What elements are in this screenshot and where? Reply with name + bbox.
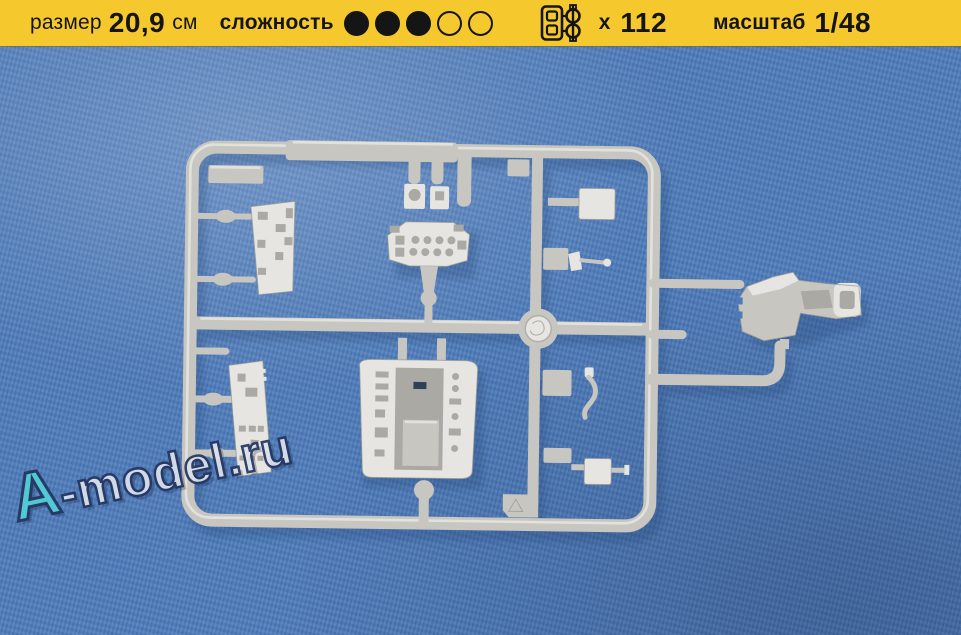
- sprue-icon: [539, 4, 585, 42]
- part-side-panel-upper: [250, 201, 295, 296]
- product-card: размер 20,9 см сложность x 112: [0, 0, 961, 635]
- parts-count-value: 112: [620, 7, 667, 39]
- part-square-plate: [548, 188, 615, 220]
- difficulty-dot: [406, 11, 431, 36]
- part-control-stick-small: [543, 248, 611, 272]
- difficulty-dot: [437, 11, 462, 36]
- difficulty-dots: [344, 11, 493, 36]
- size-value: 20,9: [109, 7, 166, 39]
- part-cockpit-tub: [357, 337, 478, 525]
- parts-count-group: x 112: [539, 4, 667, 42]
- difficulty-group: сложность: [220, 11, 493, 36]
- part-gusset-tab: [503, 494, 529, 517]
- tub-opening-hole: [413, 382, 426, 389]
- size-group: размер 20,9 см: [30, 7, 198, 39]
- u-shaped-runner: [652, 344, 780, 381]
- scale-group: масштаб 1/48: [713, 7, 871, 39]
- size-label: размер: [30, 11, 102, 35]
- parts-count-prefix: x: [599, 11, 611, 35]
- part-instrument-panel: [386, 150, 471, 329]
- info-bar: размер 20,9 см сложность x 112: [0, 0, 961, 46]
- scale-value: 1/48: [815, 7, 872, 39]
- difficulty-dot: [375, 11, 400, 36]
- part-top-left-tab: [208, 165, 263, 184]
- size-unit: см: [172, 11, 197, 35]
- product-photo: A-model.ru: [0, 46, 961, 635]
- difficulty-label: сложность: [220, 11, 334, 35]
- part-small-tab-top: [507, 159, 529, 176]
- scale-label: масштаб: [713, 11, 805, 35]
- seat-connector-runner: [653, 283, 740, 284]
- difficulty-dot: [344, 11, 369, 36]
- difficulty-dot: [468, 11, 493, 36]
- sprue-illustration: [0, 46, 961, 635]
- part-throttle-box: [543, 448, 629, 485]
- part-control-stick-bent: [542, 367, 596, 418]
